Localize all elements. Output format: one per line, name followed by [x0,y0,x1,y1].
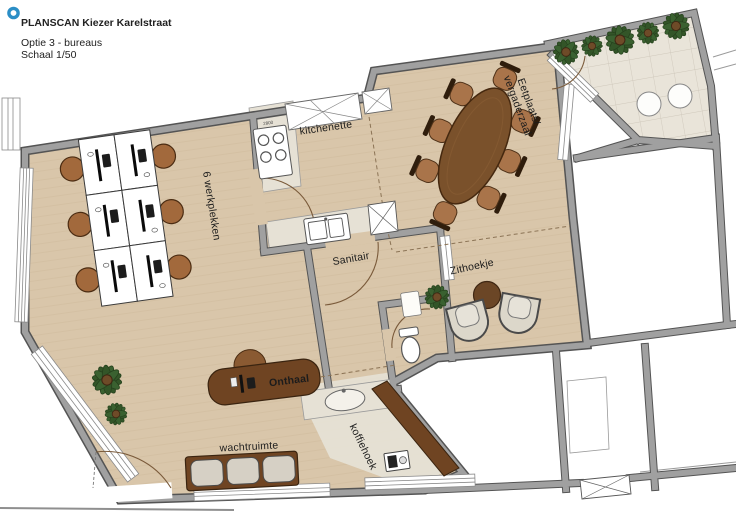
terrace-table [637,92,661,116]
plan-title: PLANSCAN Kiezer Karelstraat [21,17,172,29]
plan-scale: Schaal 1/50 [21,49,77,61]
sink [304,213,351,245]
bench-cushion [262,455,295,483]
floor-plan: 2800 [0,0,736,517]
waiting-bench-group [185,451,299,491]
bench-cushion [190,459,223,487]
street-edge [0,508,234,510]
plan-header: PLANSCAN Kiezer Karelstraat Optie 3 - bu… [9,8,172,61]
plan-option: Optie 3 - bureaus [21,37,102,49]
meeting-cabinet [362,88,392,114]
coffee-machine [384,450,410,471]
exterior-door [2,98,20,150]
terrace-table [668,84,692,108]
toilet-shelf [400,291,421,317]
shaft-box [368,201,398,235]
bench-cushion [226,457,259,485]
floorplan-page: 2800 [0,0,736,517]
logo-ring-icon [9,8,18,17]
